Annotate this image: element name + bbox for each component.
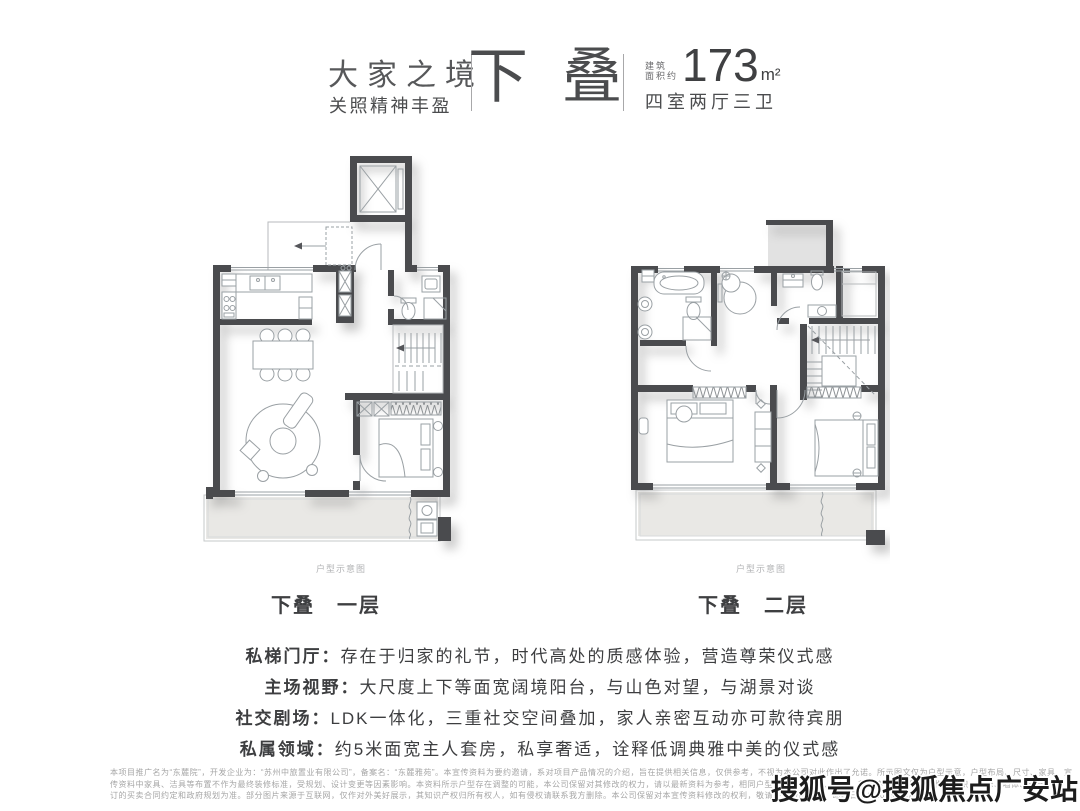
sink-icon (638, 297, 652, 311)
master-bedroom-icons (639, 387, 771, 472)
elevator-icon (360, 166, 403, 212)
utility-room (842, 272, 876, 316)
shower-icon (424, 298, 446, 319)
plan2-label: 下叠 二层 (653, 589, 853, 618)
void-block (768, 224, 826, 268)
feature-line-4: 私属领域：约5米面宽主人套房，私享奢适，诠释低调典雅中美的仪式感 (0, 735, 1080, 760)
bathroom-icons (394, 276, 446, 320)
stairs-icon (393, 325, 443, 393)
bedroom-icons (357, 402, 443, 481)
plan1-label: 下叠 一层 (226, 589, 426, 618)
floor-plan-level-2 (626, 218, 890, 570)
washer-icon (417, 502, 437, 536)
watermark: 搜狐号@搜狐焦点广安站 (771, 768, 1078, 808)
wardrobe-hatch (693, 387, 746, 398)
flyer-page: 大家之境 关照精神丰盈 下 叠 建筑 面积约 173 m² 四室两厅三卫 (0, 0, 1080, 811)
floor-plan-level-1 (193, 153, 479, 563)
master-bath-icons (638, 270, 711, 371)
wardrobe-hatch (807, 387, 861, 398)
feature-text: 存在于归家的礼节，时代高处的质感体验，营造尊荣仪式感 (341, 647, 835, 666)
area-unit: m² (761, 65, 781, 85)
plan1-caption: 户型示意图 (291, 562, 391, 575)
dining-table-icon (253, 329, 313, 381)
sofa-icon (240, 391, 320, 482)
area-block: 建筑 面积约 173 m² (645, 44, 781, 86)
bench-icon (755, 412, 771, 462)
toilet-icon (686, 297, 701, 302)
balcony (636, 490, 876, 540)
feature-title: 主场视野： (265, 678, 360, 697)
plan2-caption: 户型示意图 (711, 562, 811, 575)
type-char-xia: 下 (468, 46, 528, 108)
header-divider-right (623, 54, 624, 111)
feature-text: 约5米面宽主人套房，私享奢适，诠释低调典雅中美的仪式感 (335, 740, 840, 759)
feature-text: 大尺度上下等面宽阔境阳台，与山色对望，与湖景对谈 (360, 678, 816, 697)
feature-line-3: 社交剧场：LDK一体化，三重社交空间叠加，家人亲密互动亦可款待宾朋 (0, 704, 1080, 729)
feature-title: 私属领域： (240, 740, 335, 759)
kitchen-icons (222, 274, 312, 319)
wardrobe-hatch (391, 402, 441, 415)
feature-title: 私梯门厅： (246, 647, 341, 666)
type-char-die: 叠 (562, 46, 622, 108)
brand-subtitle: 关照精神丰盈 (329, 92, 452, 118)
bed-icon (379, 419, 433, 477)
second-bath-icons (783, 271, 836, 317)
entry-marking (294, 227, 381, 270)
feature-line-1: 私梯门厅：存在于归家的礼节，时代高处的质感体验，营造尊荣仪式感 (0, 642, 1080, 667)
area-value: 173 (682, 44, 759, 86)
brand-title: 大家之境 (328, 50, 484, 94)
feature-text: LDK一体化，三重社交空间叠加，家人亲密互动亦可款待宾朋 (330, 709, 844, 728)
feature-title: 社交剧场： (235, 709, 330, 728)
balcony (204, 495, 440, 541)
bathtub-icon (654, 272, 704, 294)
layout-spec: 四室两厅三卫 (645, 88, 777, 114)
feature-line-2: 主场视野：大尺度上下等面宽阔境阳台，与山色对望，与湖景对谈 (0, 673, 1080, 698)
area-prefix: 建筑 面积约 (645, 61, 678, 81)
second-bedroom-icons (777, 387, 878, 477)
